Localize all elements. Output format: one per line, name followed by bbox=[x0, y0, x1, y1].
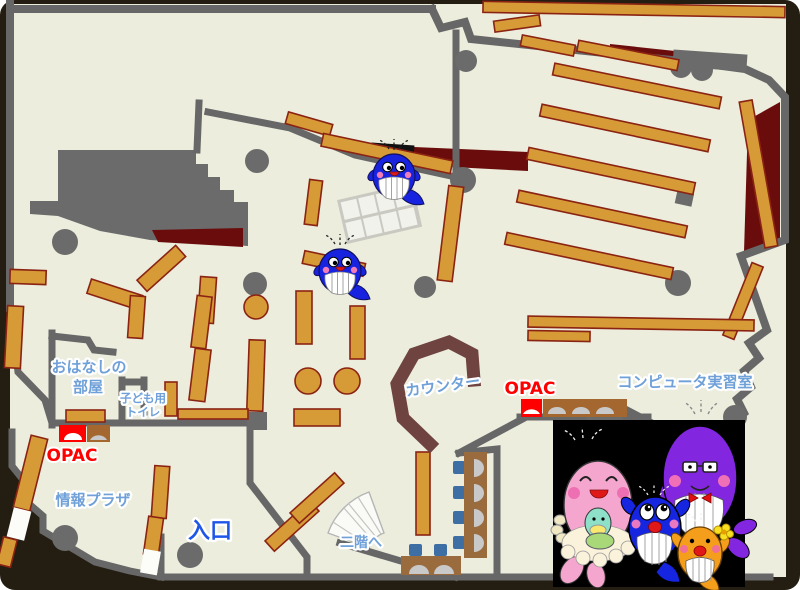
label-storytelling-room: 部屋 bbox=[73, 378, 103, 396]
bookshelf bbox=[294, 409, 340, 426]
label-opac-right[interactable]: OPAC bbox=[505, 379, 556, 399]
pillar bbox=[52, 229, 78, 255]
pillar bbox=[177, 542, 203, 568]
chair[interactable] bbox=[409, 544, 422, 556]
bookshelf bbox=[247, 340, 265, 412]
bookshelf bbox=[151, 466, 170, 519]
round-table bbox=[334, 368, 360, 394]
label-opac-left[interactable]: OPAC bbox=[47, 446, 98, 466]
chair[interactable] bbox=[453, 511, 465, 524]
pillar bbox=[243, 272, 267, 296]
label-kids-toilet: トイレ bbox=[126, 405, 161, 419]
chair[interactable] bbox=[453, 486, 465, 499]
wall bbox=[197, 103, 199, 150]
chair[interactable] bbox=[453, 461, 465, 474]
wall-block bbox=[247, 412, 267, 430]
library-floor-map: おはなしの 部屋 子ども用 トイレ OPAC 情報プラザ 入口 二階へ カウンタ… bbox=[0, 0, 800, 590]
label-storytelling-room: おはなしの bbox=[51, 358, 126, 376]
pillar bbox=[455, 50, 477, 72]
mascot-family-box bbox=[551, 420, 759, 590]
opac-terminal[interactable] bbox=[521, 399, 542, 417]
label-kids-toilet: 子ども用 bbox=[120, 391, 166, 405]
opac-station-left[interactable] bbox=[59, 425, 110, 442]
bookshelf bbox=[178, 409, 248, 419]
chair[interactable] bbox=[434, 544, 447, 556]
bookshelf bbox=[296, 291, 312, 344]
bookshelf bbox=[4, 306, 23, 369]
bookshelf bbox=[350, 306, 365, 359]
floor-map-canvas: おはなしの 部屋 子ども用 トイレ OPAC 情報プラザ 入口 二階へ カウンタ… bbox=[0, 0, 800, 590]
bookshelf bbox=[528, 330, 590, 341]
opac-station-right[interactable] bbox=[521, 399, 627, 417]
pillar bbox=[414, 276, 436, 298]
bookshelf bbox=[66, 410, 105, 422]
label-info-plaza: 情報プラザ bbox=[55, 491, 130, 509]
pillar bbox=[691, 59, 713, 81]
pillar bbox=[52, 525, 78, 551]
round-table bbox=[295, 368, 321, 394]
label-computer-room: コンピュータ実習室 bbox=[617, 373, 752, 391]
bookshelf bbox=[165, 382, 177, 416]
label-to-second-floor[interactable]: 二階へ bbox=[340, 534, 382, 551]
pillar bbox=[245, 149, 269, 173]
bookshelf bbox=[10, 269, 46, 284]
bookshelf bbox=[416, 452, 430, 535]
bookshelf bbox=[128, 296, 146, 339]
chair[interactable] bbox=[453, 536, 465, 549]
round-table bbox=[244, 295, 268, 319]
label-entrance: 入口 bbox=[188, 519, 232, 544]
